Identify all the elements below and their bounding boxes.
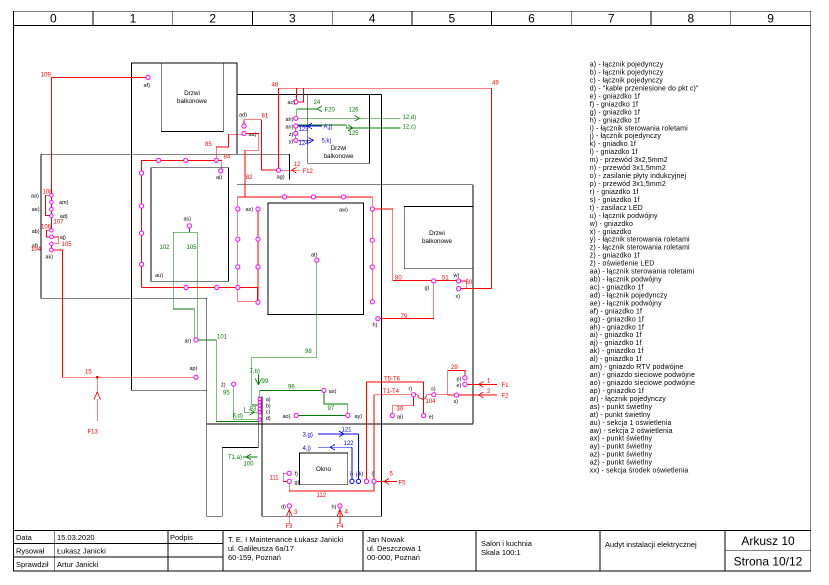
svg-text:F3: F3 bbox=[286, 524, 294, 530]
svg-text:h) - gniazdko 1f: h) - gniazdko 1f bbox=[590, 117, 640, 124]
svg-text:Podpis: Podpis bbox=[170, 533, 193, 542]
svg-text:ay) - punkt świetlny: ay) - punkt świetlny bbox=[590, 444, 653, 451]
svg-text:105: 105 bbox=[187, 245, 198, 251]
svg-text:e) - gniazdko 1f: e) - gniazdko 1f bbox=[590, 93, 640, 100]
svg-text:98: 98 bbox=[305, 349, 312, 355]
svg-text:0: 0 bbox=[50, 11, 57, 25]
svg-text:am) - gniazdo RTV podwójne: am) - gniazdo RTV podwójne bbox=[590, 364, 684, 371]
svg-text:107: 107 bbox=[54, 219, 65, 225]
svg-text:ax) - punkt świetlny: ax) - punkt świetlny bbox=[590, 436, 653, 443]
svg-text:ul. Galileusza 6a/17: ul. Galileusza 6a/17 bbox=[228, 544, 294, 553]
svg-text:F13: F13 bbox=[88, 429, 99, 435]
svg-text:Drzwi: Drzwi bbox=[331, 145, 347, 152]
svg-text:f) - gniazdko 1f: f) - gniazdko 1f bbox=[590, 101, 638, 108]
svg-text:s): s) bbox=[431, 386, 436, 392]
svg-text:l): l) bbox=[372, 472, 375, 478]
svg-text:ah) - gniazdko 1f: ah) - gniazdko 1f bbox=[590, 324, 644, 331]
svg-text:49: 49 bbox=[492, 80, 499, 86]
svg-text:as): as) bbox=[329, 389, 337, 395]
svg-text:aj) - gniazdko 1f: aj) - gniazdko 1f bbox=[590, 340, 642, 347]
svg-text:85: 85 bbox=[205, 142, 212, 148]
svg-text:Rysował: Rysował bbox=[16, 547, 45, 556]
svg-text:y) - łącznik sterowania roleta: y) - łącznik sterowania roletami bbox=[590, 237, 690, 244]
svg-text:z): z) bbox=[289, 132, 294, 138]
svg-text:as): as) bbox=[184, 216, 192, 222]
svg-text:Skala 100:1: Skala 100:1 bbox=[481, 548, 521, 557]
svg-text:ad) - łącznik pojedynczy: ad) - łącznik pojedynczy bbox=[590, 292, 668, 299]
svg-text:ax): ax) bbox=[246, 207, 254, 213]
svg-text:aa): aa) bbox=[249, 132, 257, 138]
svg-text:ż) - gniazdko 1f: ż) - gniazdko 1f bbox=[590, 253, 640, 260]
svg-text:g): g) bbox=[425, 285, 430, 291]
svg-text:A,j): A,j) bbox=[324, 124, 333, 130]
svg-text:2: 2 bbox=[209, 11, 216, 25]
svg-text:an): an) bbox=[286, 125, 294, 131]
svg-text:ah): ah) bbox=[286, 117, 294, 123]
svg-text:c) - łącznik pojedynczy: c) - łącznik pojedynczy bbox=[590, 78, 664, 85]
svg-text:T1-T4: T1-T4 bbox=[383, 389, 400, 395]
svg-text:123: 123 bbox=[299, 127, 310, 133]
svg-text:au) - sekcja 1 oświetlenia: au) - sekcja 1 oświetlenia bbox=[590, 420, 672, 427]
svg-text:t) - zasilacz LED: t) - zasilacz LED bbox=[590, 205, 643, 212]
svg-text:r) - gniazdko 1f: r) - gniazdko 1f bbox=[590, 189, 639, 196]
svg-text:3: 3 bbox=[289, 11, 296, 25]
svg-text:80: 80 bbox=[395, 275, 402, 281]
svg-text:F2: F2 bbox=[502, 394, 510, 400]
svg-text:ay): ay) bbox=[355, 414, 363, 420]
svg-text:s) - gniazdko 1f: s) - gniazdko 1f bbox=[590, 197, 640, 204]
svg-text:am): am) bbox=[59, 200, 69, 206]
svg-text:balkonowe: balkonowe bbox=[323, 153, 354, 160]
svg-text:ac): ac) bbox=[288, 100, 296, 106]
svg-text:u) - łącznik podwójny: u) - łącznik podwójny bbox=[590, 213, 658, 220]
svg-text:79: 79 bbox=[401, 314, 408, 320]
svg-text:108: 108 bbox=[43, 189, 54, 195]
svg-text:ae): ae) bbox=[32, 207, 40, 213]
svg-text:96: 96 bbox=[288, 384, 295, 390]
svg-text:121: 121 bbox=[342, 427, 353, 433]
svg-text:an) - gniazdo sieciowe podwójn: an) - gniazdo sieciowe podwójne bbox=[590, 372, 695, 379]
svg-text:Salon i kuchnia: Salon i kuchnia bbox=[481, 539, 533, 548]
svg-text:ag) - gniazdko 1f: ag) - gniazdko 1f bbox=[590, 316, 644, 323]
svg-text:i) - łącznik sterowania roleta: i) - łącznik sterowania roletami bbox=[590, 125, 688, 132]
svg-text:102: 102 bbox=[160, 245, 171, 251]
svg-text:30: 30 bbox=[397, 406, 404, 412]
svg-text:4,j): 4,j) bbox=[303, 446, 311, 452]
svg-text:15: 15 bbox=[85, 369, 92, 375]
svg-text:Sprawdził: Sprawdził bbox=[16, 560, 49, 569]
svg-text:balkonowe: balkonowe bbox=[177, 98, 208, 105]
svg-text:h): h) bbox=[332, 504, 337, 510]
svg-text:j,k): j,k) bbox=[355, 472, 364, 478]
svg-text:aw): aw) bbox=[339, 207, 348, 213]
svg-text:ao): ao) bbox=[283, 414, 291, 420]
svg-text:Strona 10/12: Strona 10/12 bbox=[734, 555, 803, 569]
svg-text:ul. Deszczowa 1: ul. Deszczowa 1 bbox=[367, 544, 422, 553]
svg-text:125: 125 bbox=[349, 131, 360, 137]
svg-text:at): at) bbox=[311, 252, 318, 258]
svg-text:x): x) bbox=[456, 294, 461, 300]
svg-text:F12: F12 bbox=[303, 169, 314, 175]
svg-text:j) - łącznik pojedynczy: j) - łącznik pojedynczy bbox=[589, 133, 662, 140]
svg-text:balkonowe: balkonowe bbox=[422, 238, 453, 245]
svg-text:109: 109 bbox=[41, 73, 52, 79]
svg-text:T5-T6: T5-T6 bbox=[384, 376, 401, 382]
svg-text:122: 122 bbox=[344, 441, 355, 447]
svg-text:ad): ad) bbox=[239, 113, 247, 119]
svg-text:84: 84 bbox=[224, 154, 231, 160]
svg-text:100: 100 bbox=[244, 462, 255, 468]
svg-text:at) - punkt świetlny: at) - punkt świetlny bbox=[590, 412, 651, 419]
svg-text:51: 51 bbox=[442, 276, 449, 282]
svg-text:a): a) bbox=[266, 397, 271, 403]
svg-text:af): af) bbox=[144, 83, 151, 89]
svg-text:97: 97 bbox=[328, 406, 335, 412]
svg-text:ag): ag) bbox=[277, 174, 285, 180]
svg-text:Łukasz Janicki: Łukasz Janicki bbox=[57, 547, 106, 556]
svg-text:g) - gniazdko 1f: g) - gniazdko 1f bbox=[590, 109, 640, 116]
svg-text:ak) - gniazdko 1f: ak) - gniazdko 1f bbox=[590, 348, 644, 355]
svg-text:ar): ar) bbox=[185, 338, 192, 344]
svg-text:n) - przewód 3x1,5mm2: n) - przewód 3x1,5mm2 bbox=[590, 165, 666, 172]
svg-text:o) - zasilanie płyty indukcyjn: o) - zasilanie płyty indukcyjnej bbox=[590, 173, 687, 180]
svg-text:ae) - łącznik podwójny: ae) - łącznik podwójny bbox=[590, 300, 662, 307]
svg-text:112: 112 bbox=[317, 493, 327, 499]
svg-text:12: 12 bbox=[294, 162, 301, 168]
svg-text:3,g): 3,g) bbox=[303, 433, 313, 439]
svg-text:m) - przewód 3x2,5mm2: m) - przewód 3x2,5mm2 bbox=[590, 157, 668, 164]
svg-text:6: 6 bbox=[528, 11, 535, 25]
svg-text:104: 104 bbox=[31, 247, 42, 253]
svg-text:82: 82 bbox=[246, 175, 253, 181]
svg-text:60-159, Poznań: 60-159, Poznań bbox=[228, 553, 281, 562]
svg-text:106: 106 bbox=[41, 224, 52, 230]
svg-text:e): e) bbox=[429, 414, 434, 420]
svg-text:8,d): 8,d) bbox=[233, 413, 243, 419]
svg-text:x) - gniazdko: x) - gniazdko bbox=[590, 229, 632, 236]
svg-text:00-000, Poznań: 00-000, Poznań bbox=[367, 553, 420, 562]
svg-text:r): r) bbox=[409, 386, 413, 392]
svg-text:5: 5 bbox=[448, 11, 455, 25]
svg-text:ai): ai) bbox=[397, 414, 403, 420]
svg-text:F5: F5 bbox=[399, 480, 407, 486]
svg-text:h): h) bbox=[373, 322, 378, 328]
svg-text:Artur Janicki: Artur Janicki bbox=[57, 560, 99, 569]
svg-text:5,k): 5,k) bbox=[322, 139, 332, 145]
svg-text:y): y) bbox=[289, 139, 294, 145]
svg-text:d) - "kable przeniesione do pk: d) - "kable przeniesione do pkt c)" bbox=[590, 86, 699, 93]
svg-text:99: 99 bbox=[262, 379, 269, 385]
svg-text:126: 126 bbox=[349, 108, 360, 114]
svg-text:e): e) bbox=[457, 383, 462, 389]
svg-text:15.03.2020: 15.03.2020 bbox=[57, 533, 95, 542]
svg-text:29: 29 bbox=[451, 365, 458, 371]
svg-text:Drzwi: Drzwi bbox=[429, 230, 445, 237]
svg-text:w): w) bbox=[453, 273, 460, 279]
svg-text:ar) - łącznik pojedynczy: ar) - łącznik pojedynczy bbox=[590, 396, 666, 403]
svg-text:7: 7 bbox=[608, 11, 615, 25]
svg-text:d): d) bbox=[281, 504, 286, 510]
svg-text:z) - łącznik sterowania roleta: z) - łącznik sterowania roletami bbox=[590, 245, 690, 252]
svg-text:Drzwi: Drzwi bbox=[184, 90, 200, 97]
svg-text:ai): ai) bbox=[216, 175, 222, 181]
svg-text:w) - gniazdko: w) - gniazdko bbox=[589, 221, 633, 228]
svg-text:s): s) bbox=[454, 399, 459, 405]
svg-text:p): p) bbox=[457, 376, 462, 382]
svg-text:4: 4 bbox=[369, 11, 376, 25]
svg-text:as) - punkt świetlny: as) - punkt świetlny bbox=[590, 404, 653, 411]
svg-text:8: 8 bbox=[688, 11, 695, 25]
svg-text:ac) - gniazdko 1f: ac) - gniazdko 1f bbox=[590, 285, 644, 292]
svg-text:c): c) bbox=[266, 410, 271, 416]
svg-text:48: 48 bbox=[272, 83, 279, 89]
svg-text:l) - gniazdko 1f: l) - gniazdko 1f bbox=[590, 149, 638, 156]
svg-text:104: 104 bbox=[426, 399, 437, 405]
svg-text:12,d): 12,d) bbox=[403, 115, 417, 121]
svg-text:ź): ź) bbox=[221, 383, 226, 389]
svg-text:105: 105 bbox=[62, 242, 73, 248]
svg-text:1: 1 bbox=[130, 11, 137, 25]
svg-text:111: 111 bbox=[270, 475, 280, 481]
svg-text:g): g) bbox=[295, 480, 300, 486]
svg-text:81: 81 bbox=[262, 113, 269, 119]
svg-text:T1,a): T1,a) bbox=[228, 455, 242, 461]
svg-text:12,c): 12,c) bbox=[403, 125, 416, 131]
svg-text:ak): ak) bbox=[45, 255, 53, 261]
svg-text:af) - gniazdko 1f: af) - gniazdko 1f bbox=[590, 308, 642, 315]
svg-text:T. E. I Maintenance Łukasz Jan: T. E. I Maintenance Łukasz Janicki bbox=[228, 535, 343, 544]
svg-text:p) - przewód 3x1,5mm2: p) - przewód 3x1,5mm2 bbox=[590, 181, 666, 188]
svg-text:F4: F4 bbox=[337, 524, 345, 530]
svg-text:aw) - sekcja 2 oświetlenia: aw) - sekcja 2 oświetlenia bbox=[590, 428, 673, 435]
svg-text:ź) - oświetlenie LED: ź) - oświetlenie LED bbox=[590, 261, 655, 268]
svg-text:95: 95 bbox=[223, 390, 230, 396]
svg-text:ap): ap) bbox=[190, 366, 198, 372]
svg-text:ai) - gniazdko 1f: ai) - gniazdko 1f bbox=[590, 332, 642, 339]
svg-text:ao) - gniazdo sieciowe podwójn: ao) - gniazdo sieciowe podwójne bbox=[590, 380, 695, 387]
svg-text:xx) - sekcja środek oświetleni: xx) - sekcja środek oświetlenia bbox=[590, 468, 689, 475]
svg-text:i): i) bbox=[350, 472, 353, 478]
svg-text:124: 124 bbox=[299, 141, 310, 147]
svg-text:101: 101 bbox=[217, 335, 228, 341]
svg-text:aź) - punkt świetlny: aź) - punkt świetlny bbox=[590, 460, 653, 467]
svg-text:Jan Nowak: Jan Nowak bbox=[367, 535, 404, 544]
svg-text:aa) - łącznik sterowania rolet: aa) - łącznik sterowania roletami bbox=[590, 269, 695, 276]
svg-text:ab): ab) bbox=[32, 229, 40, 235]
svg-text:F20: F20 bbox=[325, 107, 336, 113]
svg-text:f): f) bbox=[295, 472, 299, 478]
svg-text:24: 24 bbox=[314, 100, 321, 106]
svg-text:ap) - gniazdko 1f: ap) - gniazdko 1f bbox=[590, 388, 644, 395]
svg-text:d): d) bbox=[266, 416, 271, 422]
svg-text:ab) - łącznik podwójny: ab) - łącznik podwójny bbox=[590, 277, 662, 284]
svg-text:au): au) bbox=[155, 273, 163, 279]
svg-text:az) - punkt świetlny: az) - punkt świetlny bbox=[590, 452, 653, 459]
svg-text:b): b) bbox=[266, 403, 271, 409]
svg-text:7,b): 7,b) bbox=[250, 369, 260, 375]
svg-text:aj): aj) bbox=[60, 235, 66, 241]
svg-text:b) - łącznik pojedynczy: b) - łącznik pojedynczy bbox=[590, 70, 664, 77]
svg-text:Okno: Okno bbox=[316, 466, 332, 473]
svg-text:50: 50 bbox=[466, 280, 473, 286]
svg-text:9: 9 bbox=[767, 11, 774, 25]
svg-text:F1: F1 bbox=[502, 383, 510, 389]
svg-text:Data: Data bbox=[16, 533, 33, 542]
svg-text:k) - gniadko 1f: k) - gniadko 1f bbox=[590, 141, 636, 148]
svg-text:a) - łącznik pojedynczy: a) - łącznik pojedynczy bbox=[590, 62, 664, 69]
svg-text:93: 93 bbox=[250, 407, 257, 413]
svg-text:al) - gniazdko 1f: al) - gniazdko 1f bbox=[590, 356, 642, 363]
svg-text:aa): aa) bbox=[31, 193, 39, 199]
svg-text:Audyt instalacji elektrycznej: Audyt instalacji elektrycznej bbox=[605, 540, 697, 549]
svg-text:Arkusz 10: Arkusz 10 bbox=[741, 534, 795, 548]
